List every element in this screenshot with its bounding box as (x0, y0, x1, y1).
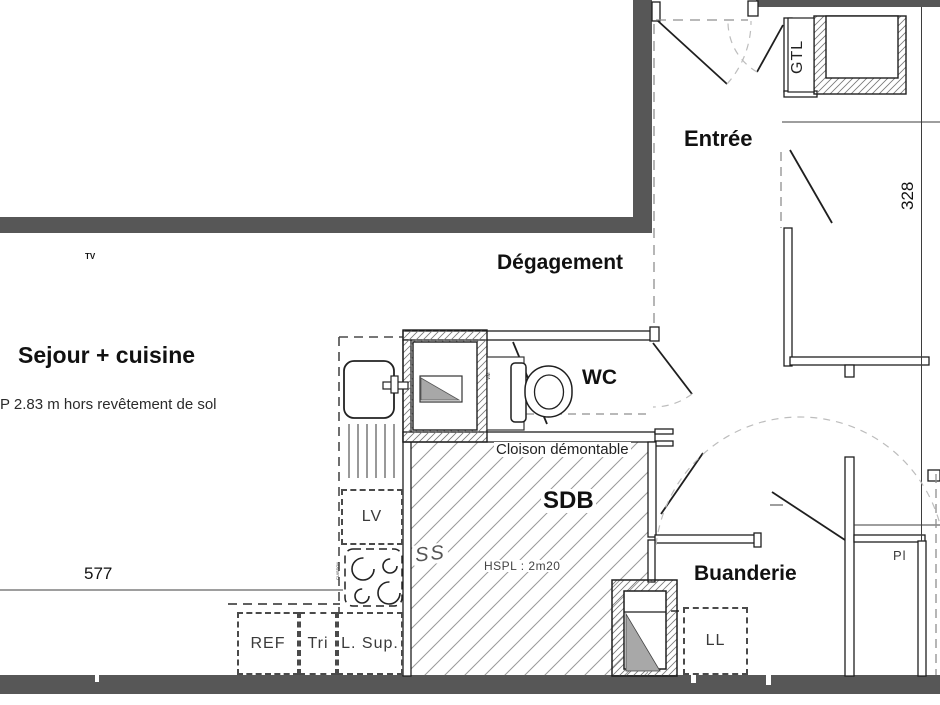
washing-machine-label: LL (706, 632, 726, 650)
tv-outlet-label: TV (85, 253, 95, 261)
room-label-entree: Entrée (684, 128, 752, 150)
toilet (511, 363, 572, 422)
sink-drainer (349, 424, 394, 478)
shower-duct-box (612, 580, 677, 676)
wall-end-caps (650, 1, 758, 341)
ss-note: SS (412, 542, 449, 566)
cooktop (345, 549, 402, 606)
ceiling-height-note: P 2.83 m hors revêtement de sol (0, 397, 217, 412)
door-swing-arcs (653, 21, 940, 545)
cooktop-tiny-label: CUISSON (336, 562, 340, 580)
room-label-sejour: Sejour + cuisine (18, 344, 195, 367)
waste-sorting-label: Tri (307, 635, 328, 653)
upper-cabinet-box: L. Sup. (337, 612, 403, 675)
gtl-label: GTL (790, 40, 806, 74)
dishwasher-label: LV (362, 508, 382, 526)
washing-machine-box: LL (683, 607, 748, 675)
cloison-demontable-note: Cloison démontable (494, 442, 631, 457)
dimension-577: 577 (84, 565, 112, 582)
upper-cabinet-label: L. Sup. (341, 635, 399, 653)
fridge-box: REF (237, 612, 299, 675)
dishwasher-box: LV (341, 489, 403, 545)
kitchen-sink (344, 361, 408, 478)
hspl-note: HSPL : 2m20 (482, 560, 562, 572)
room-label-buanderie: Buanderie (694, 563, 797, 584)
dimension-328: 328 (899, 182, 916, 210)
room-label-degagement: Dégagement (497, 252, 623, 273)
washbasin-block (403, 330, 487, 442)
floor-plan: REF Tri L. Sup. LV LL Sejour + cuisine P… (0, 0, 940, 705)
room-label-wc: WC (582, 367, 617, 388)
waste-sorting-box: Tri (299, 612, 337, 675)
fridge-label: REF (251, 635, 286, 653)
room-label-sdb: SDB (541, 489, 596, 513)
vm-tiny-label: VM (487, 373, 492, 381)
closet-label-pl: Pl (893, 549, 907, 562)
